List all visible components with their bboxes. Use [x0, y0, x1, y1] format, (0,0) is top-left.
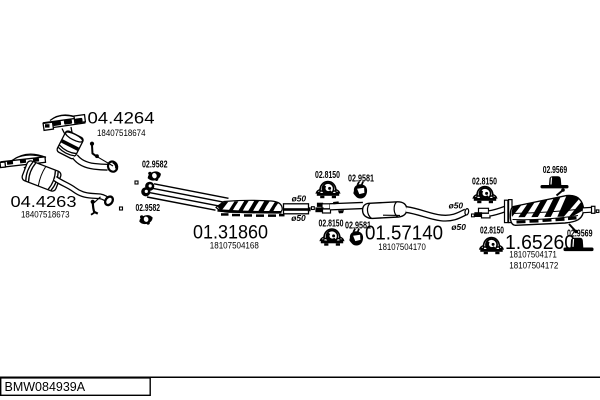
- svg-text:ø50: ø50: [451, 222, 466, 232]
- svg-text:02.8150: 02.8150: [319, 218, 344, 229]
- svg-text:ø50: ø50: [292, 193, 307, 203]
- svg-text:02.8150: 02.8150: [472, 177, 497, 188]
- svg-text:02.8150: 02.8150: [480, 225, 504, 236]
- svg-text:18107504172: 18107504172: [509, 261, 558, 271]
- svg-text:18407518673: 18407518673: [21, 210, 70, 220]
- svg-text:02.9582: 02.9582: [142, 160, 168, 171]
- svg-text:02.9582: 02.9582: [136, 203, 161, 214]
- svg-text:18107504171: 18107504171: [509, 250, 557, 260]
- svg-text:02.8150: 02.8150: [315, 170, 340, 181]
- svg-text:BMW084939A: BMW084939A: [5, 380, 86, 394]
- svg-text:18107504168: 18107504168: [210, 240, 259, 250]
- svg-text:ø50: ø50: [291, 213, 306, 223]
- svg-text:02.9569: 02.9569: [567, 228, 593, 239]
- svg-text:02.9581: 02.9581: [345, 221, 371, 232]
- svg-text:18407518674: 18407518674: [97, 128, 146, 138]
- svg-text:04.4264: 04.4264: [88, 109, 155, 128]
- svg-text:02.9581: 02.9581: [348, 173, 374, 184]
- svg-text:04.4263: 04.4263: [11, 194, 77, 211]
- svg-text:18107504170: 18107504170: [378, 242, 426, 252]
- svg-text:02.9569: 02.9569: [543, 165, 568, 176]
- svg-text:ø50: ø50: [449, 201, 464, 211]
